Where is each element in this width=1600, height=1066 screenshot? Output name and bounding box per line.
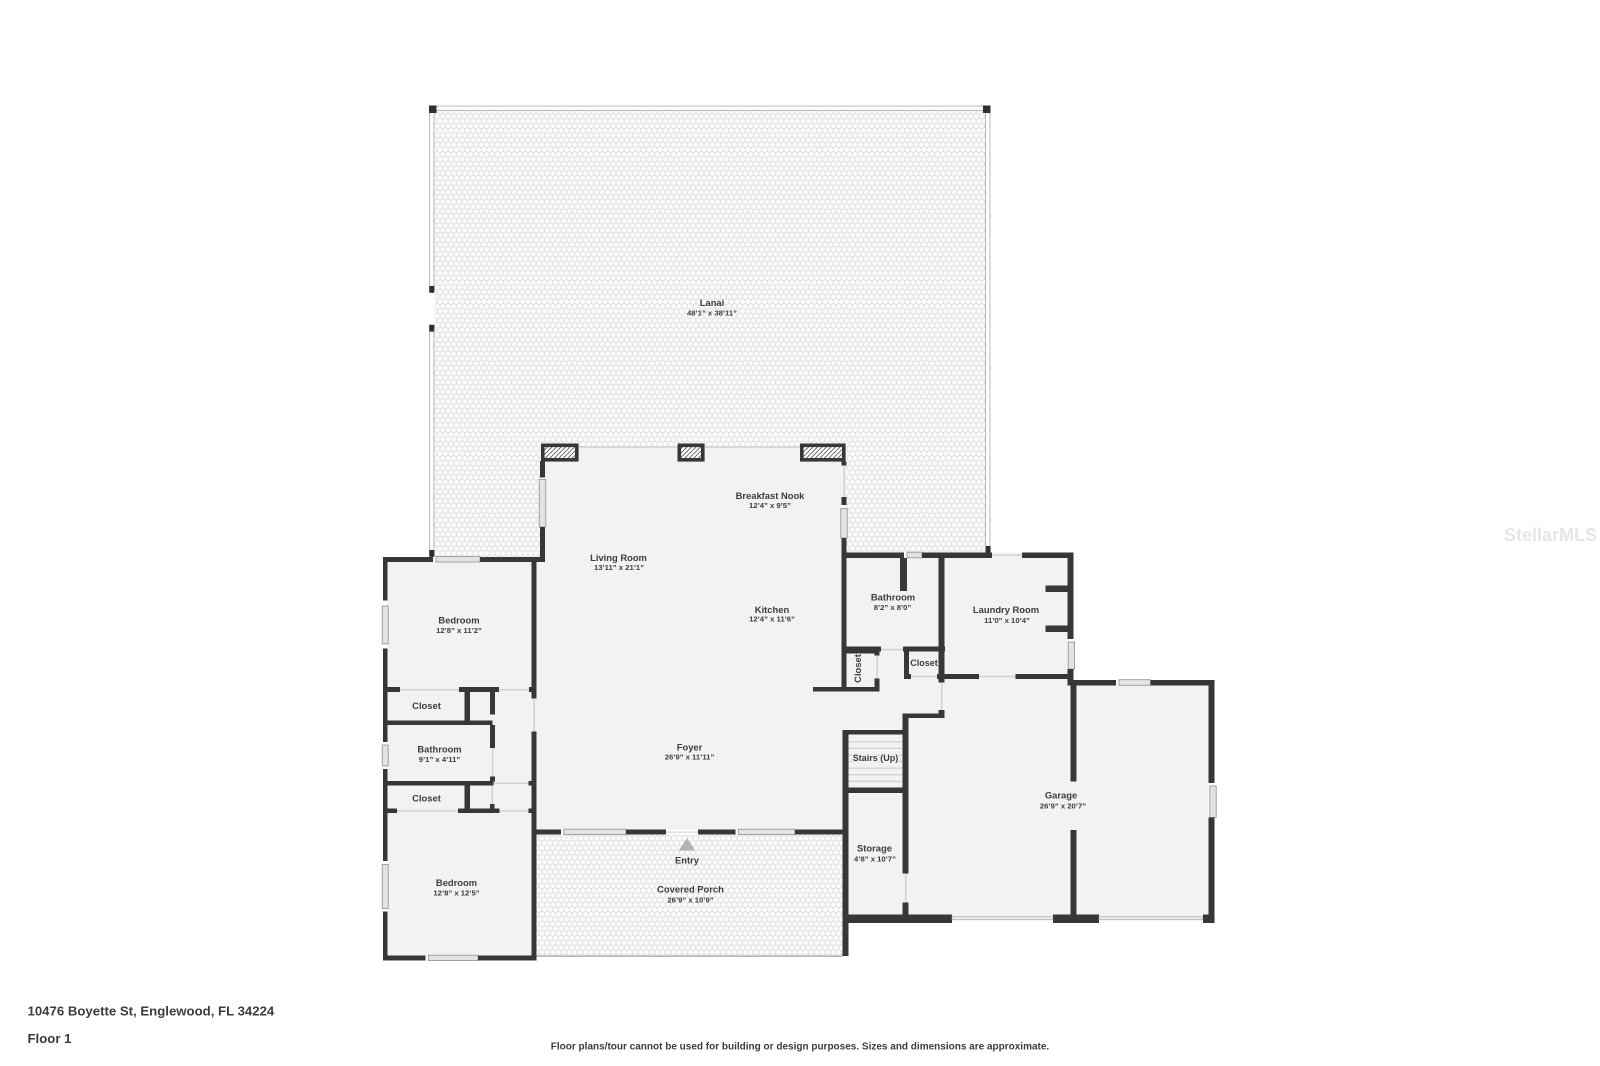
svg-text:Bathroom: Bathroom: [871, 592, 915, 603]
svg-text:26’9” x 20’7”: 26’9” x 20’7”: [1040, 802, 1086, 811]
svg-text:Stairs (Up): Stairs (Up): [853, 753, 899, 763]
svg-text:Garage: Garage: [1045, 790, 1077, 801]
svg-text:Bedroom: Bedroom: [436, 877, 477, 888]
svg-text:Living Room: Living Room: [590, 552, 647, 563]
svg-text:StellarMLS: StellarMLS: [1504, 525, 1597, 545]
svg-text:Closet: Closet: [852, 654, 863, 683]
svg-text:Entry: Entry: [675, 855, 700, 866]
svg-text:Laundry Room: Laundry Room: [973, 604, 1039, 615]
svg-text:Floor plans/tour cannot be use: Floor plans/tour cannot be used for buil…: [551, 1042, 1050, 1053]
svg-text:Bedroom: Bedroom: [438, 615, 479, 626]
svg-text:26’9” x 11’11”: 26’9” x 11’11”: [665, 753, 715, 762]
svg-text:12’8” x 12’5”: 12’8” x 12’5”: [433, 889, 479, 898]
svg-text:Lanai: Lanai: [700, 297, 725, 308]
svg-text:8’2” x 8’0”: 8’2” x 8’0”: [874, 603, 912, 612]
svg-text:Breakfast Nook: Breakfast Nook: [736, 490, 806, 501]
svg-text:4’8” x 10’7”: 4’8” x 10’7”: [854, 855, 896, 864]
svg-text:Floor 1: Floor 1: [28, 1031, 72, 1046]
svg-text:Kitchen: Kitchen: [755, 604, 790, 615]
svg-text:Foyer: Foyer: [677, 742, 703, 753]
svg-text:9’1” x 4’11”: 9’1” x 4’11”: [419, 755, 461, 764]
svg-text:Closet: Closet: [910, 658, 938, 668]
svg-text:11’0” x 10’4”: 11’0” x 10’4”: [984, 616, 1030, 625]
svg-text:Closet: Closet: [412, 793, 441, 804]
svg-text:13’11” x 21’1”: 13’11” x 21’1”: [594, 563, 644, 572]
svg-text:12’4” x 11’6”: 12’4” x 11’6”: [749, 615, 795, 624]
svg-text:10476 Boyette St, Englewood, F: 10476 Boyette St, Englewood, FL 34224: [28, 1004, 275, 1019]
svg-text:Bathroom: Bathroom: [417, 744, 461, 755]
svg-text:12’8” x 11’2”: 12’8” x 11’2”: [436, 626, 482, 635]
svg-text:48’1” x 38’11”: 48’1” x 38’11”: [687, 309, 737, 318]
svg-text:26’9” x 10’9”: 26’9” x 10’9”: [667, 896, 713, 905]
svg-text:Closet: Closet: [412, 700, 441, 711]
svg-text:Covered Porch: Covered Porch: [657, 884, 724, 895]
svg-text:12’4” x 9’5”: 12’4” x 9’5”: [749, 501, 791, 510]
svg-text:Storage: Storage: [857, 843, 892, 854]
